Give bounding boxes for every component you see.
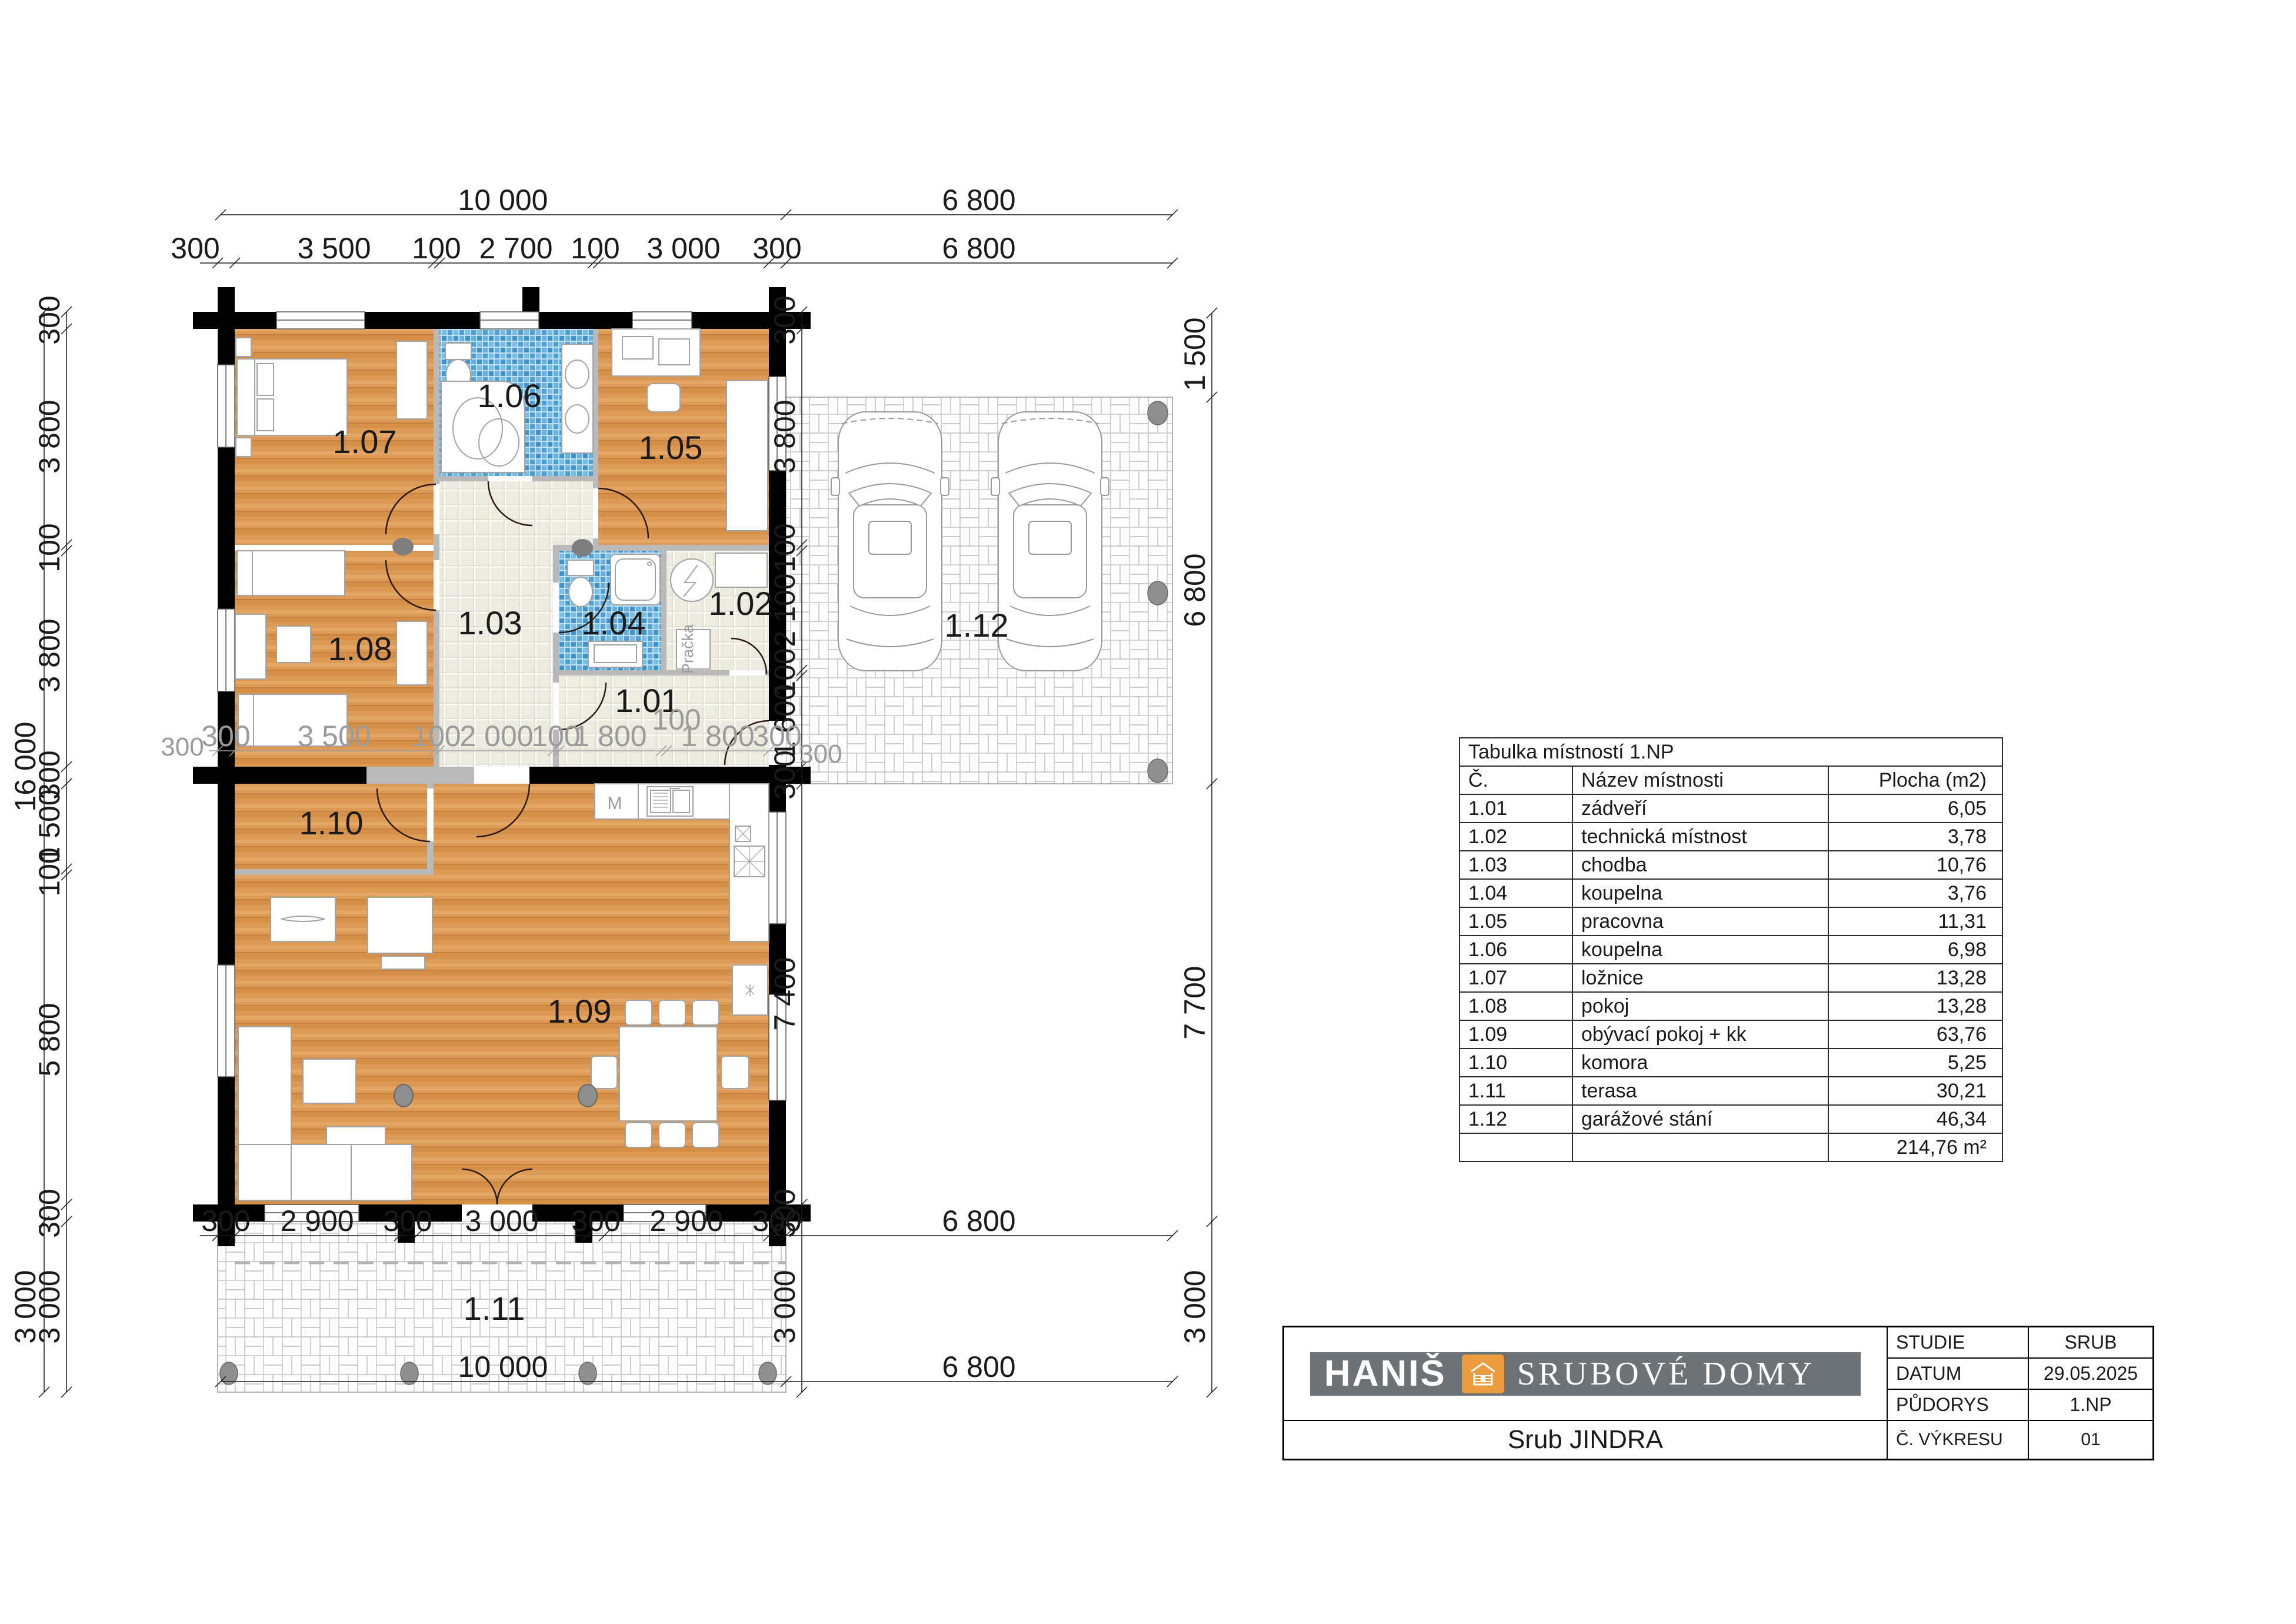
monitor <box>276 626 311 663</box>
plan-annotation: 100 <box>652 703 701 736</box>
table-cell: 3,78 <box>1828 823 2002 851</box>
dimension-label: 1 500 <box>1178 317 1211 391</box>
table-cell: chodba <box>1572 851 1828 879</box>
dimension-label: 2 700 <box>479 232 552 265</box>
counter <box>715 553 767 587</box>
column <box>394 1084 413 1107</box>
table-cell: 5,25 <box>1828 1049 2002 1077</box>
dimension-label: 300 <box>768 295 801 344</box>
wardrobe <box>396 621 427 685</box>
table-cell: 1.10 <box>1459 1049 1572 1077</box>
table-cell: komora <box>1572 1049 1828 1077</box>
dimension-label: 3 000 <box>33 1270 66 1343</box>
plan-annotation: Pračka <box>679 624 697 674</box>
car-right <box>991 412 1109 671</box>
table-total-row: 214,76 m² <box>1459 1133 2002 1162</box>
table-cell: 6,05 <box>1828 794 2002 823</box>
dimension-label: 3 000 <box>465 1204 538 1237</box>
dimension-label: 6 800 <box>942 1350 1015 1383</box>
dimension-label: 6 800 <box>1178 553 1211 627</box>
dimension-label: 100 <box>33 847 66 896</box>
company-logo: HANIŠ SRUBOVÉ DOMY <box>1310 1352 1861 1396</box>
field-label: DATUM <box>1887 1358 2028 1389</box>
dimension-label: 10 000 <box>458 184 548 217</box>
table-header-row: Č. Název místnosti Plocha (m2) <box>1459 766 2002 794</box>
room-number-label: 1.09 <box>548 993 612 1030</box>
dimension-label: 6 800 <box>942 1204 1015 1237</box>
dimension-label: 300 <box>201 1204 250 1237</box>
field-value: SRUB <box>2028 1327 2153 1358</box>
table-cell: terasa <box>1572 1077 1828 1105</box>
room-number-label: 1.05 <box>639 429 703 466</box>
table-cell: obývací pokoj + kk <box>1572 1020 1828 1049</box>
dimension-label: 300 <box>201 720 250 753</box>
room-number-label: 1.07 <box>333 423 397 460</box>
dimension-label: 100 <box>33 523 66 572</box>
table-cell: 6,98 <box>1828 936 2002 964</box>
dimension-label: 2 100 <box>768 573 801 647</box>
brand-tagline: SRUBOVÉ DOMY <box>1517 1355 1815 1393</box>
carport-area <box>786 397 1172 784</box>
dimension-label: 3 800 <box>768 400 801 473</box>
window <box>276 312 365 329</box>
room-table: Tabulka místností 1.NP Č. Název místnost… <box>1459 737 2003 1162</box>
table-cell: 1.02 <box>1459 823 1572 851</box>
room-number-label: 1.10 <box>299 804 364 841</box>
table-cell: 1.11 <box>1459 1077 1572 1105</box>
logo-cell: HANIŠ SRUBOVÉ DOMY <box>1284 1327 1887 1420</box>
field-label: STUDIE <box>1887 1327 2028 1358</box>
table-row: 1.06koupelna6,98 <box>1459 936 2002 964</box>
room-number-label: 1.04 <box>582 604 646 641</box>
table-row: 1.03chodba10,76 <box>1459 851 2002 879</box>
column <box>578 1084 597 1107</box>
room-number-label: 1.12 <box>945 607 1009 644</box>
table-row: 1.12garážové stání46,34 <box>1459 1105 2002 1133</box>
closet <box>727 381 768 531</box>
dimension-label: 100 <box>412 720 461 753</box>
dimension-label: 10 000 <box>458 1350 548 1383</box>
room-number-label: 1.11 <box>464 1290 525 1327</box>
field-label: PŮDORYS <box>1887 1389 2028 1420</box>
table-cell: koupelna <box>1572 936 1828 964</box>
table-cell: 30,21 <box>1828 1077 2002 1105</box>
room-number-label: 1.08 <box>328 630 392 667</box>
drawing-sheet: { "plan": { "room_labels": [ {"t":"1.07"… <box>0 0 2296 1624</box>
dimension-label: 300 <box>33 295 66 344</box>
dimension-label: 3 000 <box>647 232 720 265</box>
dimension-label: 2 900 <box>280 1204 354 1237</box>
log-house-icon <box>1462 1355 1504 1393</box>
dimension-label: 100 <box>768 523 801 572</box>
table-cell: 1.03 <box>1459 851 1572 879</box>
table-row: 1.05pracovna11,31 <box>1459 907 2002 936</box>
tv-cabinet <box>271 897 335 941</box>
table-row: 1.09obývací pokoj + kk63,76 <box>1459 1020 2002 1049</box>
chair <box>647 384 680 412</box>
table-cell: ložnice <box>1572 964 1828 992</box>
sofa <box>238 1027 291 1144</box>
dimension-label: 6 800 <box>942 232 1015 265</box>
table-row: 1.02technická místnost3,78 <box>1459 823 2002 851</box>
dining-table <box>619 1027 717 1121</box>
table-cell: 13,28 <box>1828 964 2002 992</box>
dimension-label: 3 000 <box>768 1270 801 1343</box>
table-title-row: Tabulka místností 1.NP <box>1459 738 2002 766</box>
dimension-label: 1 800 <box>573 720 647 753</box>
table-cell: zádveří <box>1572 794 1828 823</box>
total-area: 214,76 m² <box>1828 1133 2002 1162</box>
dimension-label: 100 <box>571 232 619 265</box>
table-row: 1.10komora5,25 <box>1459 1049 2002 1077</box>
field-labels: STUDIE DATUM PŮDORYS <box>1887 1327 2028 1420</box>
dimension-label: 2 000 <box>459 720 533 753</box>
dimension-label: 3 800 <box>33 618 66 692</box>
room-number-label: 1.02 <box>709 585 773 622</box>
toilet <box>569 577 592 607</box>
table-row: 1.07ložnice13,28 <box>1459 964 2002 992</box>
table-cell: pracovna <box>1572 907 1828 936</box>
window <box>218 365 235 447</box>
table-cell: 1.07 <box>1459 964 1572 992</box>
col-header-area: Plocha (m2) <box>1828 766 2002 794</box>
brand-name: HANIŠ <box>1324 1353 1447 1395</box>
dimension-label: 300 <box>571 1204 620 1237</box>
col-header-name: Název místnosti <box>1572 766 1828 794</box>
dimension-label: 5 800 <box>33 1003 66 1076</box>
title-block: HANIŠ SRUBOVÉ DOMY STUDIE DATUM PŮDORYS … <box>1282 1326 2154 1460</box>
armchair <box>303 1059 356 1103</box>
dimension-label: 3 500 <box>297 720 371 753</box>
room-number-label: 1.03 <box>458 604 522 641</box>
table-cell: 11,31 <box>1828 907 2002 936</box>
dimension-label: 300 <box>171 232 219 265</box>
table-row: 1.08pokoj13,28 <box>1459 992 2002 1020</box>
table-cell: 46,34 <box>1828 1105 2002 1133</box>
table-cell: 1.12 <box>1459 1105 1572 1133</box>
table-cell: technická místnost <box>1572 823 1828 851</box>
table-cell: 1.06 <box>1459 936 1572 964</box>
drawing-number: 01 <box>2028 1420 2153 1459</box>
window <box>480 312 539 329</box>
drawing-title: Srub JINDRA <box>1284 1420 1887 1459</box>
table-row: 1.11terasa30,21 <box>1459 1077 2002 1105</box>
table-cell: 1.08 <box>1459 992 1572 1020</box>
dimension-label: 3 000 <box>1178 1270 1211 1343</box>
window <box>218 609 235 691</box>
sofa <box>238 1144 412 1200</box>
table-title: Tabulka místností 1.NP <box>1459 738 2002 766</box>
table-cell: koupelna <box>1572 879 1828 907</box>
plan-annotation: M <box>608 794 622 813</box>
field-value: 29.05.2025 <box>2028 1358 2153 1389</box>
dimension-label: 300 <box>752 720 801 753</box>
table-row: 1.01zádveří6,05 <box>1459 794 2002 823</box>
window <box>769 812 786 924</box>
table-cell: 1.04 <box>1459 879 1572 907</box>
table-cell: pokoj <box>1572 992 1828 1020</box>
cabinet <box>368 897 432 953</box>
dimension-label: 300 <box>752 232 801 265</box>
dimension-label: 300 <box>768 750 801 799</box>
room-number-label: 1.06 <box>478 377 542 414</box>
table-cell: 13,28 <box>1828 992 2002 1020</box>
dimension-label: 3 800 <box>33 400 66 473</box>
dimension-label: 300 <box>752 1204 801 1237</box>
window <box>218 965 235 1077</box>
table-cell: 1.05 <box>1459 907 1572 936</box>
dimension-label: 2 900 <box>649 1204 723 1237</box>
table-row: 1.04koupelna3,76 <box>1459 879 2002 907</box>
bed-single <box>237 551 345 595</box>
floor-plan: 1.071.061.051.081.031.041.021.011.101.09… <box>0 0 1294 1471</box>
toilet-tank <box>445 343 471 360</box>
table-cell: 1.01 <box>1459 794 1572 823</box>
wardrobe <box>396 341 427 419</box>
dimension-label: 300 <box>33 1189 66 1237</box>
table-cell: 10,76 <box>1828 851 2002 879</box>
col-header-number: Č. <box>1459 766 1572 794</box>
dimension-label: 3 500 <box>297 232 371 265</box>
table-cell: 1.09 <box>1459 1020 1572 1049</box>
plan-annotation: 300 <box>799 740 842 768</box>
dimension-label: 6 800 <box>942 184 1015 217</box>
dimension-label: 7 400 <box>768 957 801 1030</box>
table-cell: 3,76 <box>1828 879 2002 907</box>
window <box>632 312 692 329</box>
drawing-number-label: Č. VÝKRESU <box>1887 1420 2028 1459</box>
toilet-tank <box>568 560 594 575</box>
dimension-label: 100 <box>412 232 461 265</box>
field-value: 1.NP <box>2028 1389 2153 1420</box>
field-values: SRUB 29.05.2025 1.NP <box>2028 1327 2153 1420</box>
dimension-label: 300 <box>383 1204 432 1237</box>
table-cell: 63,76 <box>1828 1020 2002 1049</box>
desk <box>235 614 266 679</box>
table-cell: garážové stání <box>1572 1105 1828 1133</box>
dimension-label: 7 700 <box>1178 966 1211 1039</box>
plan-annotation: 300 <box>161 733 204 761</box>
boiler <box>671 559 713 601</box>
car-left <box>831 412 949 671</box>
